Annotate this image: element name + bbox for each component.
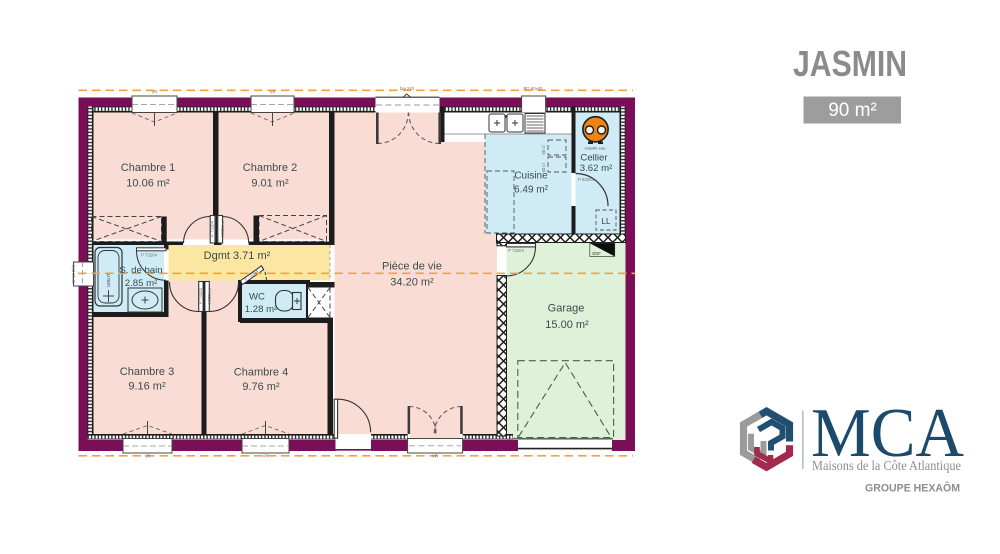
svg-text:90 m²: 90 m² xyxy=(828,100,877,121)
svg-text:Garage: Garage xyxy=(548,303,585,315)
svg-text:P 73204: P 73204 xyxy=(207,288,212,305)
svg-text:Dgmt 3.71 m²: Dgmt 3.71 m² xyxy=(204,250,271,262)
svg-text:1.28 m²: 1.28 m² xyxy=(245,304,278,315)
svg-text:P 73204: P 73204 xyxy=(141,253,158,258)
svg-text:LL: LL xyxy=(602,217,611,226)
svg-text:Pièce de vie: Pièce de vie xyxy=(382,261,442,273)
svg-text:Chambre 2: Chambre 2 xyxy=(243,162,297,174)
svg-text:GROUPE HEXAÔM: GROUPE HEXAÔM xyxy=(865,482,960,495)
svg-text:60 cl: 60 cl xyxy=(541,145,546,154)
svg-text:P 73204: P 73204 xyxy=(220,221,225,238)
svg-text:EDF: EDF xyxy=(592,251,601,256)
svg-text:Chambre 3: Chambre 3 xyxy=(120,366,174,378)
svg-text:chauffe eau: chauffe eau xyxy=(585,146,606,151)
svg-text:34.20 m²: 34.20 m² xyxy=(390,277,434,289)
svg-text:15.00 m²: 15.00 m² xyxy=(545,319,589,331)
svg-text:6.49 m²: 6.49 m² xyxy=(514,185,549,196)
svg-text:P 63204: P 63204 xyxy=(578,177,595,182)
svg-text:VR: VR xyxy=(145,454,151,459)
svg-text:160x70: 160x70 xyxy=(106,272,111,287)
svg-text:VR: VR xyxy=(263,454,269,459)
svg-text:S. de bain: S. de bain xyxy=(119,265,162,276)
svg-text:Maisons de la Côte Atlantique: Maisons de la Côte Atlantique xyxy=(812,458,961,473)
svg-text:P 73204: P 73204 xyxy=(508,248,525,253)
svg-text:JASMIN: JASMIN xyxy=(793,43,907,84)
svg-text:9.16 m²: 9.16 m² xyxy=(128,381,166,393)
svg-text:P 73204: P 73204 xyxy=(210,220,215,237)
svg-text:Cellier: Cellier xyxy=(580,153,608,164)
svg-text:P 73204: P 73204 xyxy=(198,287,203,304)
svg-text:WC: WC xyxy=(249,292,265,303)
svg-text:3.62 m²: 3.62 m² xyxy=(580,163,613,174)
svg-text:9.01 m²: 9.01 m² xyxy=(251,178,289,190)
svg-text:VR: VR xyxy=(152,90,158,95)
svg-text:Chambre 1: Chambre 1 xyxy=(121,162,175,174)
svg-text:SF10 D/G: SF10 D/G xyxy=(71,264,76,284)
svg-text:Chambre 4: Chambre 4 xyxy=(234,367,288,379)
svg-text:60 cl: 60 cl xyxy=(541,163,546,172)
svg-text:9.76 m²: 9.76 m² xyxy=(242,381,280,393)
svg-text:VR: VR xyxy=(270,90,276,95)
svg-text:BO 60x45: BO 60x45 xyxy=(523,86,543,91)
svg-text:VR: VR xyxy=(432,454,438,459)
svg-text:bai 240: bai 240 xyxy=(400,86,415,91)
svg-text:2.85 m²: 2.85 m² xyxy=(125,278,158,289)
svg-text:10.06 m²: 10.06 m² xyxy=(126,178,170,190)
